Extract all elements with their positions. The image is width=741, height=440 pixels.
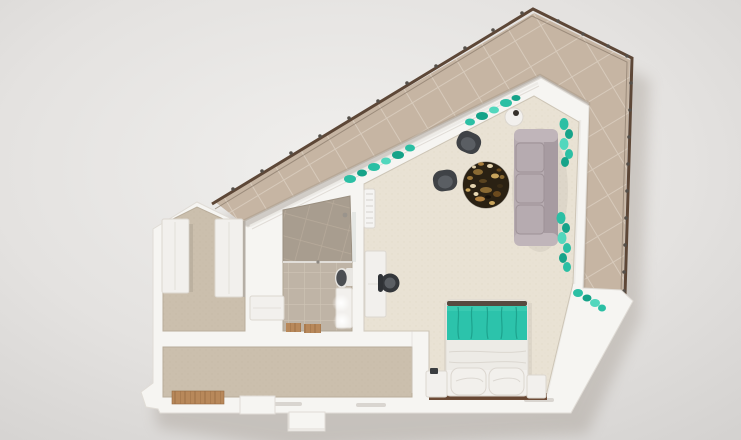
wall-slot-2 — [356, 403, 386, 407]
bed-pillow-left — [451, 368, 486, 395]
bed-trim — [447, 301, 527, 306]
entry-inner-step — [240, 396, 275, 414]
round-rug — [463, 162, 509, 208]
wall-slot — [272, 402, 302, 406]
bath-wood-mat — [286, 323, 301, 332]
ac-unit — [364, 189, 375, 228]
entry-wood-threshold — [172, 391, 224, 404]
wardrobe-edge — [243, 221, 246, 297]
bed — [446, 300, 528, 396]
desk-chair — [378, 274, 400, 293]
table-decor — [513, 110, 519, 116]
shower-door-handle — [316, 260, 319, 263]
nightstand-right — [527, 375, 546, 398]
bed-duvet — [447, 340, 527, 370]
desk-chair-back — [378, 274, 383, 292]
entry-door-bump — [289, 412, 325, 429]
bath-wood-mat-2 — [304, 324, 321, 333]
sofa — [514, 129, 558, 246]
bed-pillow-right — [489, 368, 524, 395]
nightstand-device — [430, 368, 438, 374]
nightstand-left — [426, 368, 447, 397]
wardrobe-right — [215, 219, 246, 297]
vanity-light — [332, 294, 350, 312]
entry-corridor-floor — [163, 347, 412, 397]
floor-plan-image — [0, 0, 741, 440]
side-table — [505, 108, 523, 126]
bathroom-mirror — [352, 212, 356, 262]
vanity-light-2 — [333, 312, 351, 330]
apartment-render-svg — [0, 0, 741, 440]
wardrobe-left — [162, 219, 193, 293]
shower-head — [343, 213, 348, 218]
washer-counter — [250, 296, 284, 320]
toilet — [335, 268, 353, 288]
